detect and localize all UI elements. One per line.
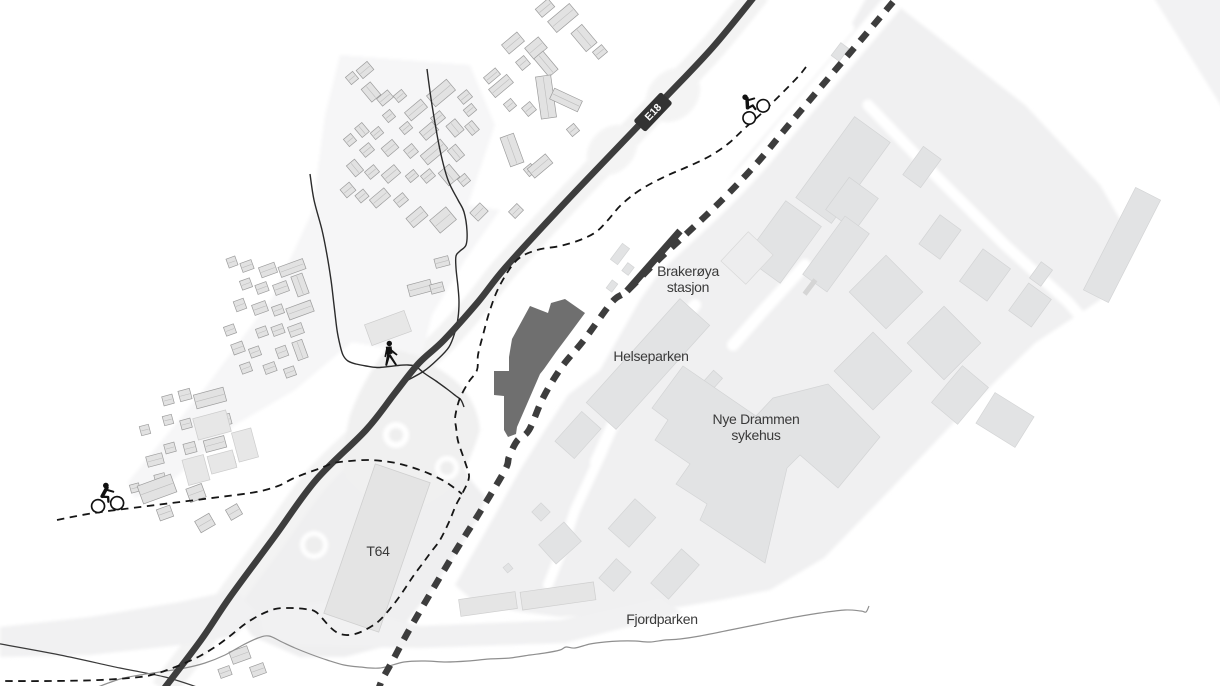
svg-text:stasjon: stasjon bbox=[667, 279, 709, 295]
svg-text:Fjordparken: Fjordparken bbox=[626, 611, 697, 627]
svg-text:Brakerøya: Brakerøya bbox=[657, 263, 719, 279]
svg-text:Helseparken: Helseparken bbox=[613, 348, 688, 364]
svg-text:sykehus: sykehus bbox=[731, 427, 781, 443]
svg-text:Nye Drammen: Nye Drammen bbox=[713, 411, 800, 427]
svg-text:T64: T64 bbox=[366, 543, 390, 559]
